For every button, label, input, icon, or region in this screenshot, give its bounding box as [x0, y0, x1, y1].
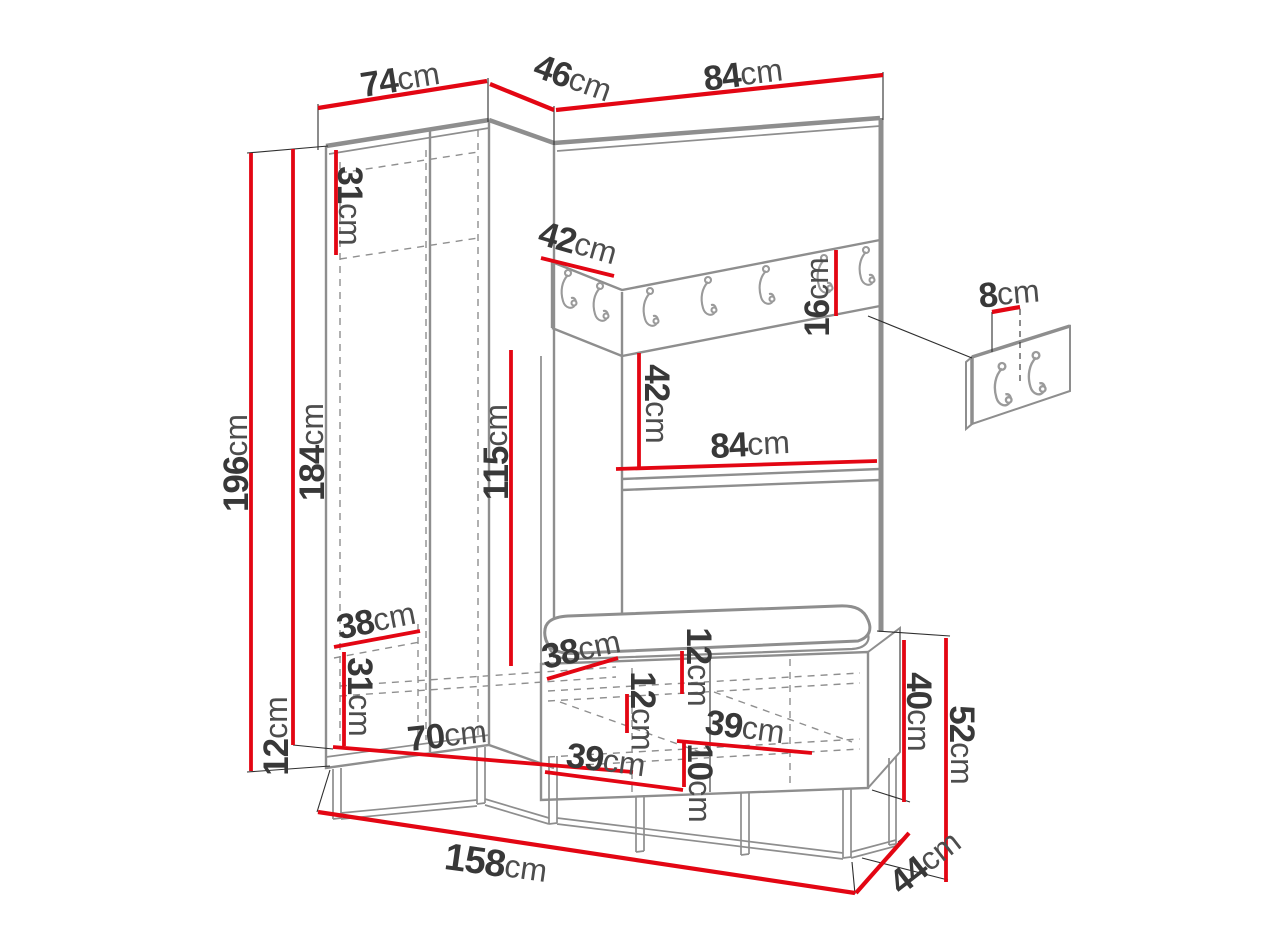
detail-leader-line: [868, 316, 972, 358]
dim-label-top-shelf-height: 31cm: [331, 166, 370, 246]
dim-label-top-width-left: 74cm: [358, 54, 443, 105]
hook-panel-detail: [966, 326, 1070, 429]
dim-label-top-width-right: 84cm: [701, 50, 785, 98]
wall-panel-outline: [554, 118, 881, 632]
dim-label-hanging-height: 115cm: [477, 404, 516, 500]
coat-hook-icon: [594, 283, 609, 321]
dim-label-bench-shelf-inset: 12cm: [624, 671, 663, 751]
coat-hook-icon: [644, 288, 659, 326]
dimension-diagram: 74cm 46cm 84cm 196cm 184cm 12cm 31cm 42c…: [0, 0, 1267, 950]
dim-label-shelf-depth: 42cm: [534, 213, 621, 272]
dim-label-bench-body-height: 40cm: [900, 672, 939, 752]
dim-label-interior-width: 70cm: [405, 711, 488, 758]
dim-label-bench-height-total: 52cm: [943, 705, 982, 785]
coat-hook-icon: [702, 277, 717, 315]
coat-hook-icon: [860, 247, 875, 285]
dim-label-bottom-shelf-depth: 38cm: [333, 593, 419, 646]
diagram-canvas: 74cm 46cm 84cm 196cm 184cm 12cm 31cm 42c…: [0, 0, 1267, 950]
dim-label-height-legs: 12cm: [257, 696, 296, 776]
dim-label-bottom-compartment-height: 31cm: [341, 657, 380, 737]
dim-label-bench-top-inset: 12cm: [680, 627, 719, 707]
dim-label-top-depth-corner: 46cm: [529, 46, 617, 110]
dim-label-hook-rail-height: 16cm: [798, 257, 837, 337]
coat-hook-icon: [562, 270, 577, 308]
niche-shelf: [622, 469, 880, 490]
coat-hook-icon: [760, 266, 775, 304]
dim-label-niche-height: 42cm: [638, 364, 677, 444]
dim-label-niche-width: 84cm: [709, 422, 791, 465]
dim-label-height-total: 196cm: [217, 414, 256, 512]
dim-label-hook-panel-spacing: 8cm: [977, 271, 1041, 315]
dim-label-depth-total: 44cm: [882, 822, 969, 902]
dim-label-height-body: 184cm: [293, 403, 332, 501]
dim-label-bench-bottom-inset: 10cm: [681, 743, 720, 823]
